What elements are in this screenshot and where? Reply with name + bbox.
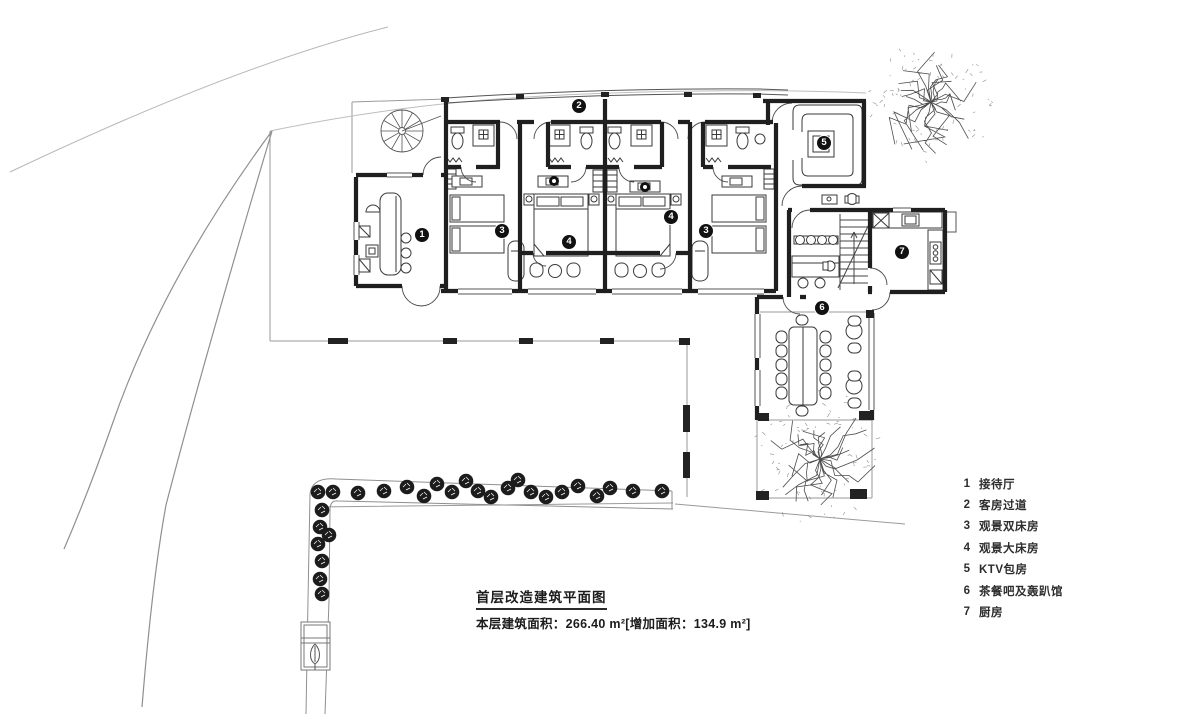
- kitchen-window: [893, 208, 911, 212]
- shrub-icon: [311, 537, 326, 552]
- spiral-stair: [381, 110, 441, 152]
- shrub-icon: [377, 484, 392, 499]
- legend-item-label: 接待厅: [979, 476, 1015, 492]
- shrub-icon: [539, 490, 554, 505]
- plan-title: 首层改造建筑平面图: [476, 586, 607, 610]
- room-marker-number: 4: [668, 210, 673, 224]
- shrub-icon: [571, 479, 586, 494]
- bar-stool: [815, 278, 825, 288]
- room-marker-number: 6: [819, 301, 824, 315]
- legend-item-4: 4观景大床房: [958, 537, 1063, 558]
- room-marker-number: 1: [419, 228, 424, 242]
- stool: [401, 248, 411, 258]
- room-marker-king-room-west: 4: [562, 235, 576, 249]
- bar-stool: [798, 278, 808, 288]
- legend-item-number: 7: [958, 606, 970, 618]
- room-marker-tea-bar-party-room: 6: [815, 301, 829, 315]
- shrub-icon: [590, 489, 605, 504]
- shrub-icon: [445, 485, 460, 500]
- shrub-icon: [511, 473, 526, 488]
- basin: [755, 134, 765, 144]
- shrub-icon: [471, 484, 486, 499]
- balcony-furniture: [530, 263, 665, 278]
- shrub-icon: [626, 484, 641, 499]
- shrub-icon: [484, 490, 499, 505]
- reception-desk: [359, 193, 411, 275]
- legend-item-1: 1接待厅: [958, 473, 1063, 494]
- legend-item-label: 观景大床房: [979, 540, 1039, 556]
- legend-item-number: 4: [958, 542, 970, 554]
- legend-item-2: 2客房过道: [958, 494, 1063, 515]
- tea-room-furniture: [776, 315, 862, 416]
- legend-item-number: 3: [958, 520, 970, 532]
- legend-item-7: 7厨房: [958, 601, 1063, 622]
- stair-break-line: [838, 218, 872, 288]
- columns: [328, 92, 874, 500]
- room-marker-twin-room-east: 3: [699, 224, 713, 238]
- room-marker-number: 5: [821, 136, 826, 150]
- shrub-icon: [311, 485, 326, 500]
- legend-item-label: KTV包房: [979, 561, 1028, 577]
- legend-item-3: 3观景双床房: [958, 516, 1063, 537]
- legend-item-label: 观景双床房: [979, 518, 1039, 534]
- room-marker-number: 2: [576, 99, 581, 113]
- shrub-icon: [430, 477, 445, 492]
- road-lines: [10, 27, 388, 707]
- floor-plan-canvas: 123443567 首层改造建筑平面图 本层建筑面积：266.40 m²[增加面…: [0, 0, 1200, 714]
- shrub-icon: [655, 484, 670, 499]
- legend-item-number: 2: [958, 499, 970, 511]
- room-marker-guest-corridor: 2: [572, 99, 586, 113]
- service-desk: [822, 194, 859, 205]
- title-block: 首层改造建筑平面图 本层建筑面积：266.40 m²[增加面积：134.9 m²…: [476, 586, 751, 632]
- main-stairs: [838, 214, 872, 290]
- lounge-chair: [692, 241, 708, 281]
- room-marker-number: 3: [703, 224, 708, 238]
- legend-item-5: 5KTV包房: [958, 559, 1063, 580]
- shrub-icon: [315, 587, 330, 602]
- shrub-icon: [555, 485, 570, 500]
- shrub-icon: [313, 572, 328, 587]
- shrub-icon: [603, 481, 618, 496]
- hedge-shrubs: [311, 473, 670, 602]
- legend-item-number: 6: [958, 585, 970, 597]
- legend-item-number: 1: [958, 478, 970, 490]
- room-marker-king-room-east: 4: [664, 210, 678, 224]
- road-edge-west: [64, 131, 272, 549]
- shrub-icon: [459, 474, 474, 489]
- room-marker-reception-hall: 1: [415, 228, 429, 242]
- ground-edge-lines: [315, 503, 905, 524]
- room-marker-twin-room-west: 3: [495, 224, 509, 238]
- shrub-icon: [400, 480, 415, 495]
- legend-item-label: 厨房: [979, 604, 1003, 620]
- legend: 1接待厅2客房过道3观景双床房4观景大床房5KTV包房6茶餐吧及轰趴馆7厨房: [958, 473, 1063, 623]
- room-marker-number: 7: [899, 245, 904, 259]
- beds: [450, 194, 766, 281]
- shrub-icon: [315, 503, 330, 518]
- road-edge-east: [142, 131, 272, 707]
- plan-area-note: 本层建筑面积：266.40 m²[增加面积：134.9 m²]: [476, 613, 751, 632]
- shrub-icon: [524, 485, 539, 500]
- stool: [401, 263, 411, 273]
- shrub-icon: [315, 554, 330, 569]
- shrub-icon: [351, 486, 366, 501]
- legend-item-6: 6茶餐吧及轰趴馆: [958, 580, 1063, 601]
- legend-item-number: 5: [958, 563, 970, 575]
- kitchen-ext-pad: [946, 212, 956, 232]
- stool: [401, 233, 411, 243]
- legend-item-label: 客房过道: [979, 497, 1027, 513]
- shrub-icon: [417, 489, 432, 504]
- room-marker-number: 3: [499, 224, 504, 238]
- bar-counter: [792, 236, 839, 289]
- planter-box: [301, 622, 330, 670]
- legend-item-label: 茶餐吧及轰趴馆: [979, 583, 1063, 599]
- room-marker-kitchen: 7: [895, 245, 909, 259]
- hillside-line: [10, 27, 388, 172]
- shrub-icon: [326, 485, 341, 500]
- room-marker-number: 4: [566, 235, 571, 249]
- reception-chair: [366, 205, 380, 212]
- room-marker-ktv-room: 5: [817, 136, 831, 150]
